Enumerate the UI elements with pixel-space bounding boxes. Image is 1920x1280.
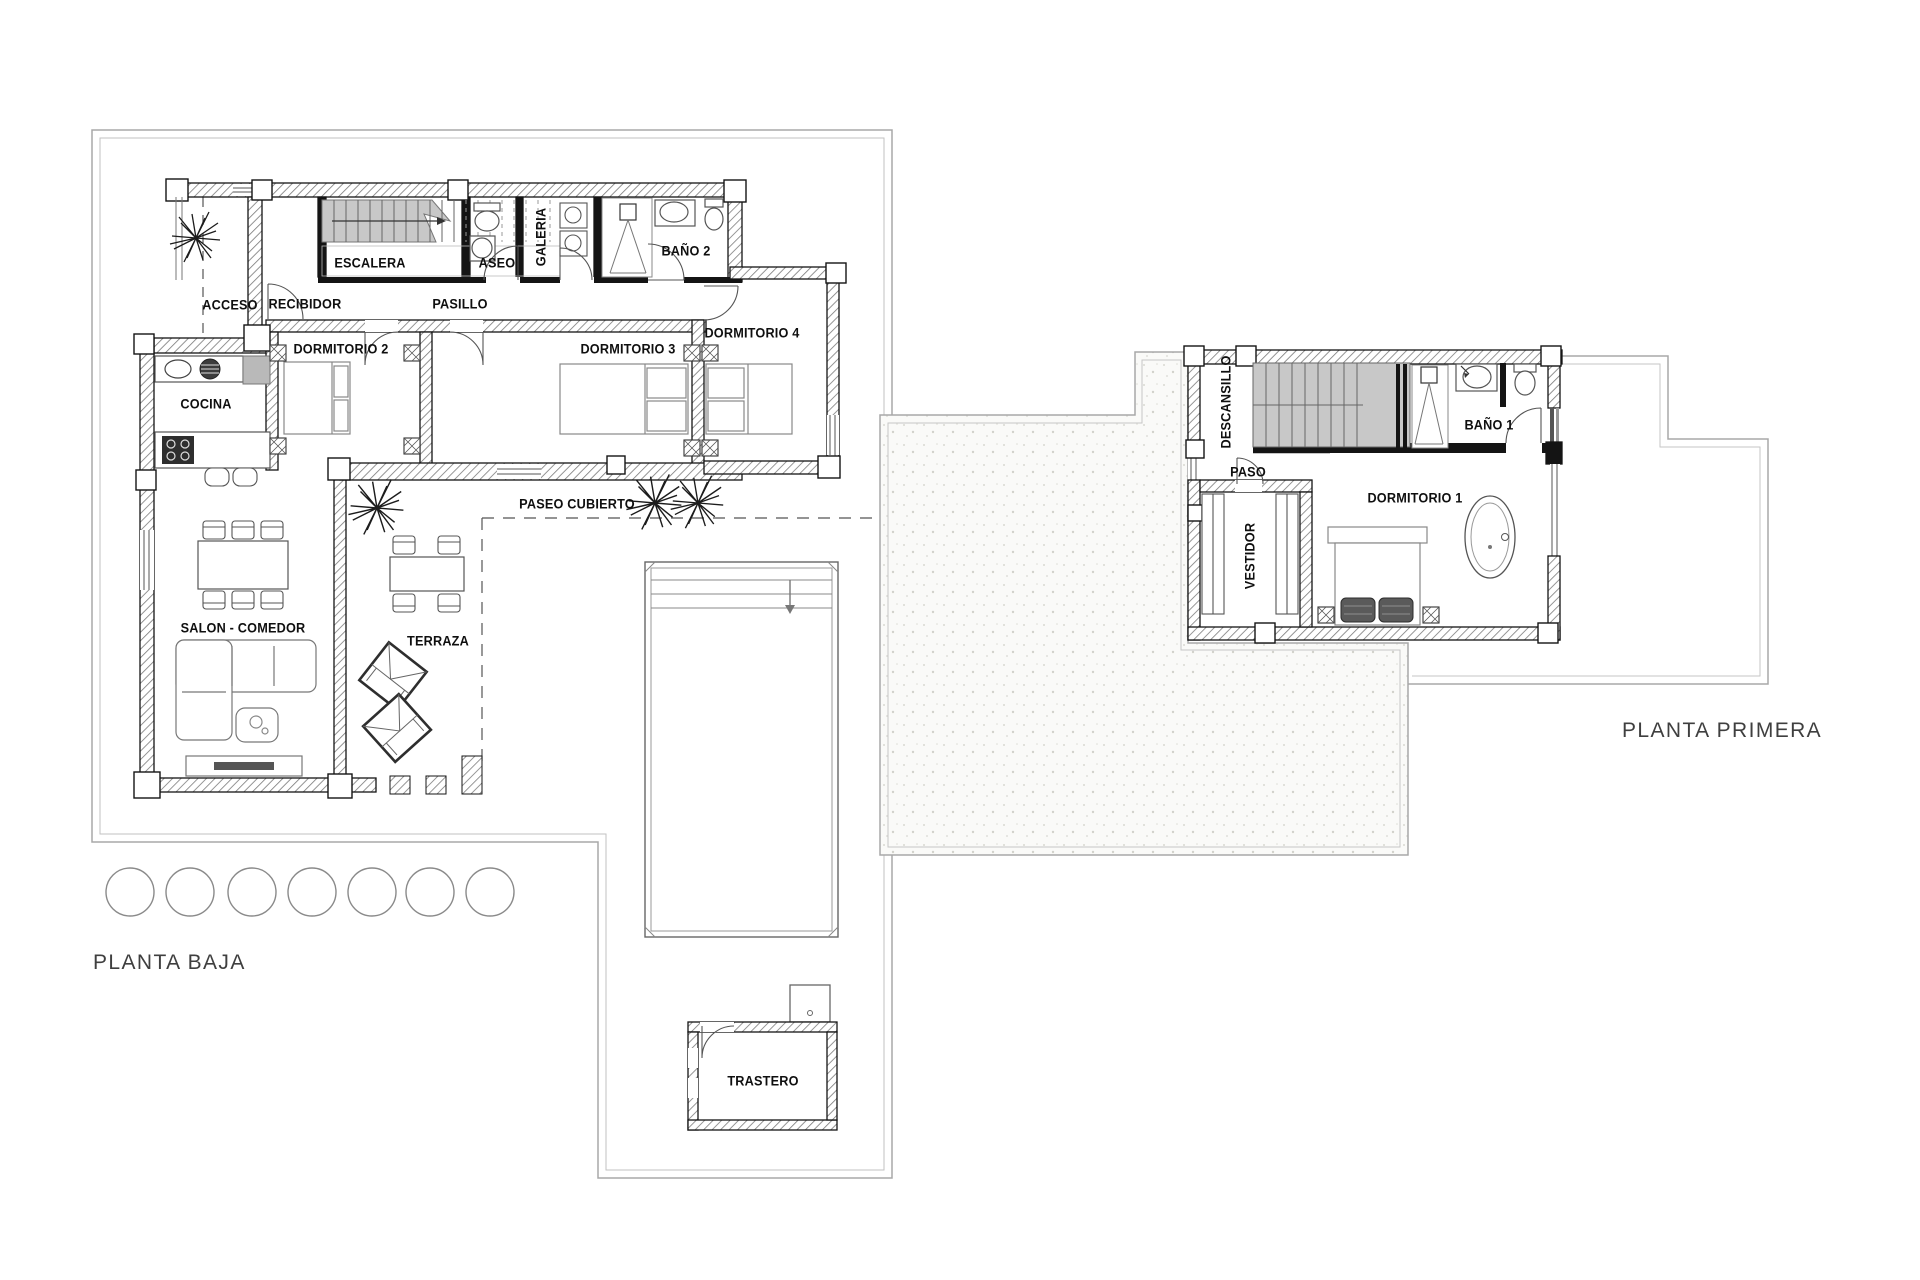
room-label-dormitorio1: DORMITORIO 1 xyxy=(1367,491,1462,506)
room-label-dormitorio3: DORMITORIO 3 xyxy=(580,342,675,357)
aseo-fixtures xyxy=(470,203,500,261)
ground-floor-plan xyxy=(92,130,892,1178)
room-label-dormitorio2: DORMITORIO 2 xyxy=(293,342,388,357)
dining-set xyxy=(198,521,288,609)
pool xyxy=(645,562,838,937)
bano1-fixtures xyxy=(1412,364,1536,448)
plans-drawing xyxy=(0,0,1920,1280)
room-label-escalera: ESCALERA xyxy=(334,256,405,271)
room-label-trastero: TRASTERO xyxy=(727,1074,798,1089)
terrace-dashed-line xyxy=(482,518,884,762)
plan-title-planta-baja: PLANTA BAJA xyxy=(93,951,246,975)
room-label-galeria: GALERIA xyxy=(534,208,549,266)
room-label-recibidor: RECIBIDOR xyxy=(269,297,342,312)
bedroom-beds xyxy=(284,362,792,434)
room-label-paseo-cubierto: PASEO CUBIERTO xyxy=(519,497,635,512)
room-label-bano1: BAÑO 1 xyxy=(1464,418,1513,433)
room-label-pasillo: PASILLO xyxy=(432,297,487,312)
sofa-group xyxy=(176,640,316,776)
floor-plans-page: ESCALERA ASEO GALERIA BAÑO 2 ACCESO RECI… xyxy=(0,0,1920,1280)
room-label-vestidor: VESTIDOR xyxy=(1243,523,1258,589)
bano2-fixtures xyxy=(602,198,723,277)
room-label-paso: PASO xyxy=(1230,465,1266,480)
kitchen-fixtures xyxy=(155,356,270,486)
trastero xyxy=(688,985,837,1130)
room-label-bano2: BAÑO 2 xyxy=(661,244,710,259)
terraza-furniture xyxy=(359,536,482,794)
room-label-descansillo: DESCANSILLO xyxy=(1219,355,1234,448)
porch-window xyxy=(176,197,182,280)
plan-title-planta-primera: PLANTA PRIMERA xyxy=(1622,719,1822,743)
ground-walls xyxy=(138,183,839,792)
room-label-acceso: ACCESO xyxy=(202,298,257,313)
first-stairs xyxy=(1253,363,1410,452)
room-label-cocina: COCINA xyxy=(180,397,231,412)
room-label-terraza: TERRAZA xyxy=(407,634,469,649)
room-label-salon-comedor: SALON - COMEDOR xyxy=(181,621,306,636)
tree-row xyxy=(106,868,514,916)
room-label-dormitorio4: DORMITORIO 4 xyxy=(704,326,799,341)
dorm1-furniture xyxy=(1318,496,1515,625)
room-label-aseo: ASEO xyxy=(479,256,516,271)
first-floor-plan xyxy=(880,346,1768,855)
